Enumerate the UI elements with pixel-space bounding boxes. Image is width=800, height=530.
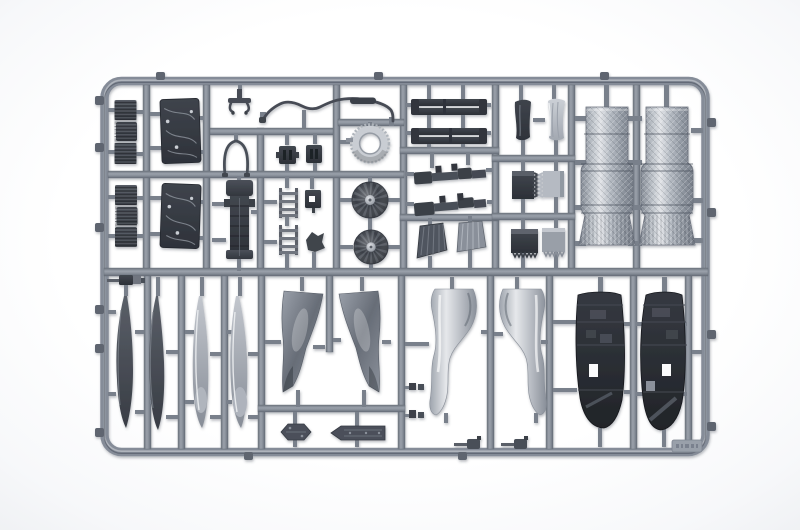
exhaust-nozzle-cylinder-2 <box>639 107 695 245</box>
sprue-photo: Grey injection-moulded plastic sprue (pa… <box>0 0 800 530</box>
turbine-fan-2 <box>354 230 388 264</box>
arrow-plate <box>331 426 385 440</box>
mold-stamp <box>672 440 702 452</box>
detailed-bay-panel-2 <box>641 292 687 430</box>
detailed-bay-panel-1 <box>576 292 625 428</box>
photo-model-kit-sprue: Grey injection-moulded plastic sprue (pa… <box>0 0 800 530</box>
hexagonal-plate <box>281 424 311 440</box>
turbine-fan-1 <box>352 182 388 218</box>
exhaust-nozzle-cylinder-1 <box>579 107 635 245</box>
